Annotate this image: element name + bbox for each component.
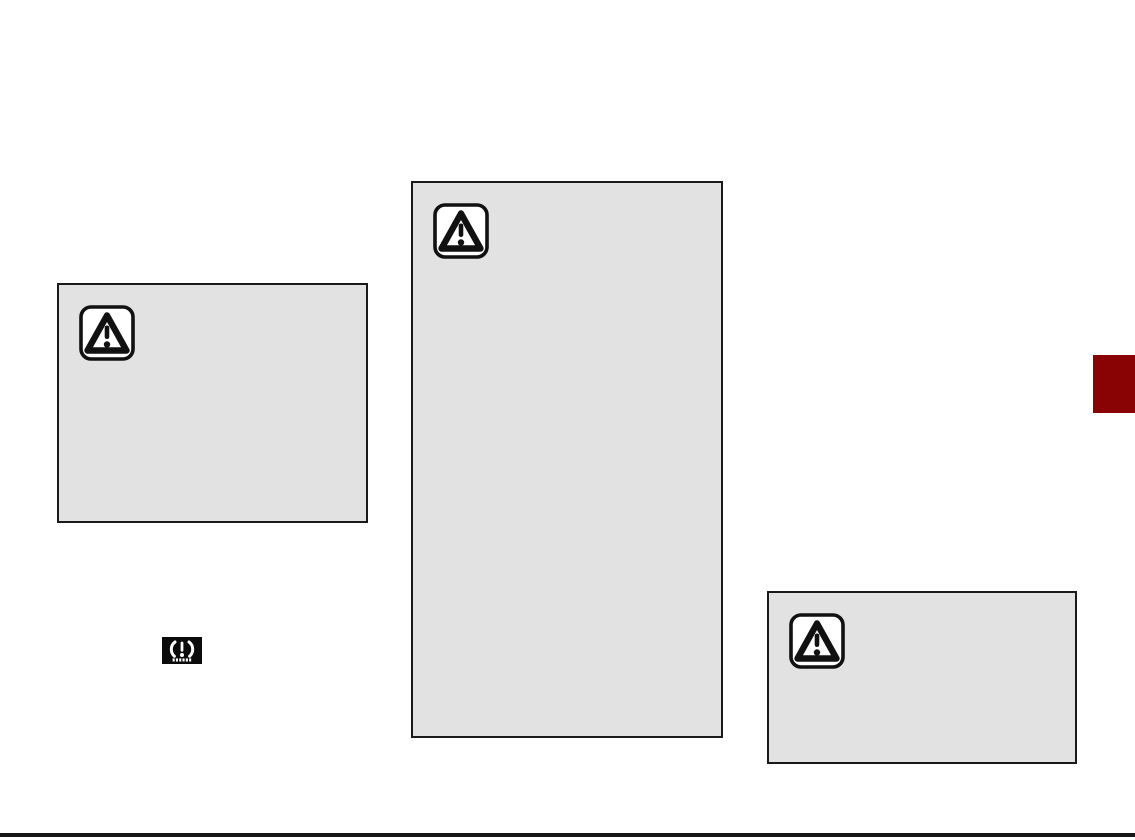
warning-triangle-icon [788, 612, 846, 670]
manual-page [0, 0, 1135, 840]
tpms-warning-lamp-icon [162, 637, 202, 664]
section-index-tab [1093, 355, 1135, 413]
warning-callout-left [57, 283, 368, 523]
page-bottom-rule [0, 833, 1135, 837]
warning-triangle-icon [78, 304, 136, 362]
warning-callout-right [767, 591, 1077, 764]
warning-triangle-icon [432, 202, 490, 260]
warning-callout-center [411, 181, 723, 738]
